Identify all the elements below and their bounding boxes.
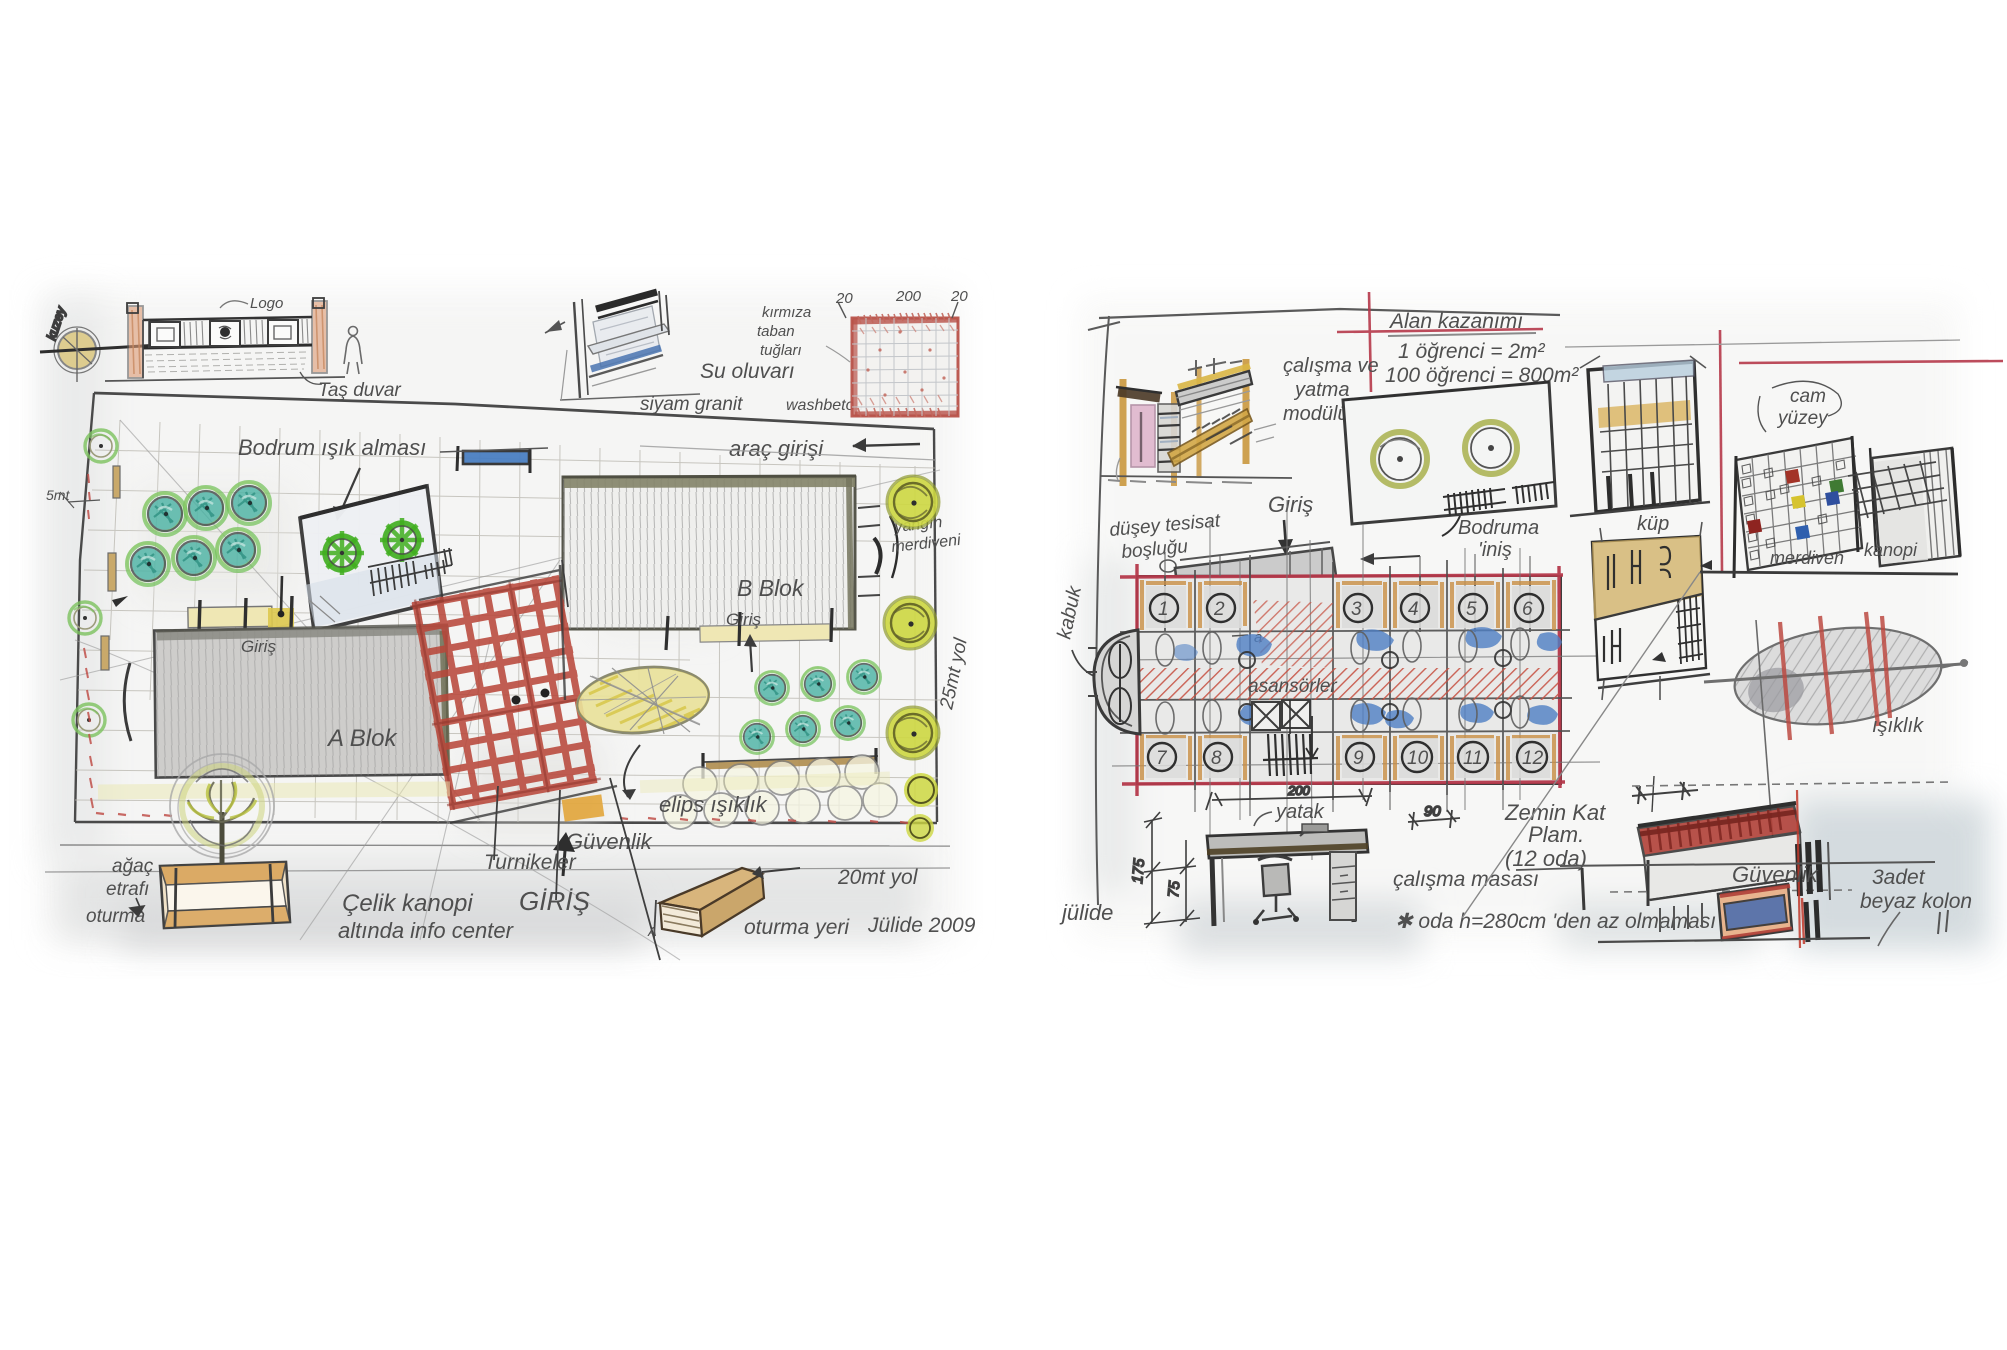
svg-text:kırmıza: kırmıza (762, 304, 811, 321)
svg-text:Jülide 2009: Jülide 2009 (867, 914, 976, 937)
svg-text:Plam.: Plam. (1528, 822, 1584, 847)
svg-text:Su oluvarı: Su oluvarı (700, 360, 795, 383)
svg-text:Giriş: Giriş (241, 637, 276, 656)
svg-text:asansörler: asansörler (1248, 676, 1337, 697)
svg-text:beyaz kolon: beyaz kolon (1860, 890, 1972, 913)
svg-text:araç girişi: araç girişi (729, 436, 824, 461)
svg-text:yüzey: yüzey (1776, 408, 1829, 429)
svg-text:oturma yeri: oturma yeri (744, 916, 850, 939)
svg-text:yatak: yatak (1274, 801, 1325, 823)
svg-text:7: 7 (1156, 748, 1168, 769)
svg-text:ışıklık: ışıklık (1872, 715, 1924, 737)
svg-text:Turnikeler: Turnikeler (484, 851, 577, 874)
svg-text:1 öğrenci = 2m²: 1 öğrenci = 2m² (1398, 340, 1545, 363)
svg-text:küp: küp (1637, 513, 1669, 535)
svg-text:20: 20 (835, 290, 853, 307)
svg-text:merdiven: merdiven (1770, 548, 1844, 568)
svg-text:Logo: Logo (250, 295, 283, 312)
svg-text:GİRİŞ: GİRİŞ (519, 886, 590, 916)
svg-text:3adet: 3adet (1872, 866, 1926, 889)
svg-text:A Blok: A Blok (326, 725, 398, 752)
svg-text:etrafı: etrafı (106, 879, 149, 900)
svg-text:çalışma masası: çalışma masası (1393, 868, 1539, 891)
svg-text:Güvenlik: Güvenlik (1732, 862, 1819, 887)
svg-text:175: 175 (1129, 857, 1148, 884)
svg-text:75: 75 (1165, 880, 1183, 899)
svg-text:Taş duvar: Taş duvar (318, 380, 401, 401)
svg-text:3: 3 (1351, 599, 1362, 620)
svg-text:2: 2 (1213, 599, 1225, 620)
svg-text:'iniş: 'iniş (1478, 539, 1512, 561)
svg-text:tuğları: tuğları (760, 342, 802, 359)
svg-text:jülide: jülide (1059, 900, 1113, 925)
svg-text:10: 10 (1407, 748, 1429, 769)
svg-text:4: 4 (1408, 599, 1419, 620)
svg-text:9: 9 (1353, 748, 1364, 769)
svg-text:90: 90 (1424, 803, 1441, 820)
svg-text:elips ışıklık: elips ışıklık (659, 792, 768, 817)
svg-text:20: 20 (950, 288, 968, 305)
svg-text:siyam granit: siyam granit (640, 394, 743, 415)
svg-text:6: 6 (1522, 599, 1533, 620)
svg-text:200: 200 (895, 288, 922, 305)
svg-text:8: 8 (1211, 748, 1222, 769)
svg-text:5mt: 5mt (46, 487, 70, 503)
svg-text:yatma: yatma (1293, 379, 1349, 401)
svg-text:20mt yol: 20mt yol (837, 866, 919, 889)
svg-text:Giriş: Giriş (726, 610, 761, 629)
svg-text:ağaç: ağaç (112, 856, 154, 877)
svg-text:B Blok: B Blok (737, 575, 805, 601)
svg-text:Giriş: Giriş (1268, 492, 1313, 517)
svg-text:Çelik kanopi: Çelik kanopi (342, 890, 473, 917)
svg-text:✱ oda h=280cm 'den az olmaması: ✱ oda h=280cm 'den az olmaması (1395, 910, 1716, 933)
svg-text:kanopi: kanopi (1864, 540, 1918, 560)
svg-text:Bodruma: Bodruma (1458, 517, 1539, 539)
svg-text:modülü: modülü (1283, 403, 1349, 425)
svg-text:taban: taban (757, 323, 795, 340)
svg-text:Alan kazanımı: Alan kazanımı (1388, 310, 1523, 333)
svg-text:5: 5 (1466, 599, 1477, 620)
svg-text:11: 11 (1463, 748, 1483, 769)
svg-text:Bodrum ışık alması: Bodrum ışık alması (238, 435, 426, 460)
svg-text:çalışma ve: çalışma ve (1283, 355, 1379, 377)
svg-text:1: 1 (1158, 599, 1169, 620)
svg-text:200: 200 (1287, 783, 1310, 798)
svg-text:cam: cam (1790, 386, 1826, 407)
svg-text:A: A (647, 924, 657, 939)
svg-text:altında info center: altında info center (338, 918, 515, 943)
svg-text:12: 12 (1522, 748, 1544, 769)
svg-text:Güvenlik: Güvenlik (566, 829, 653, 854)
